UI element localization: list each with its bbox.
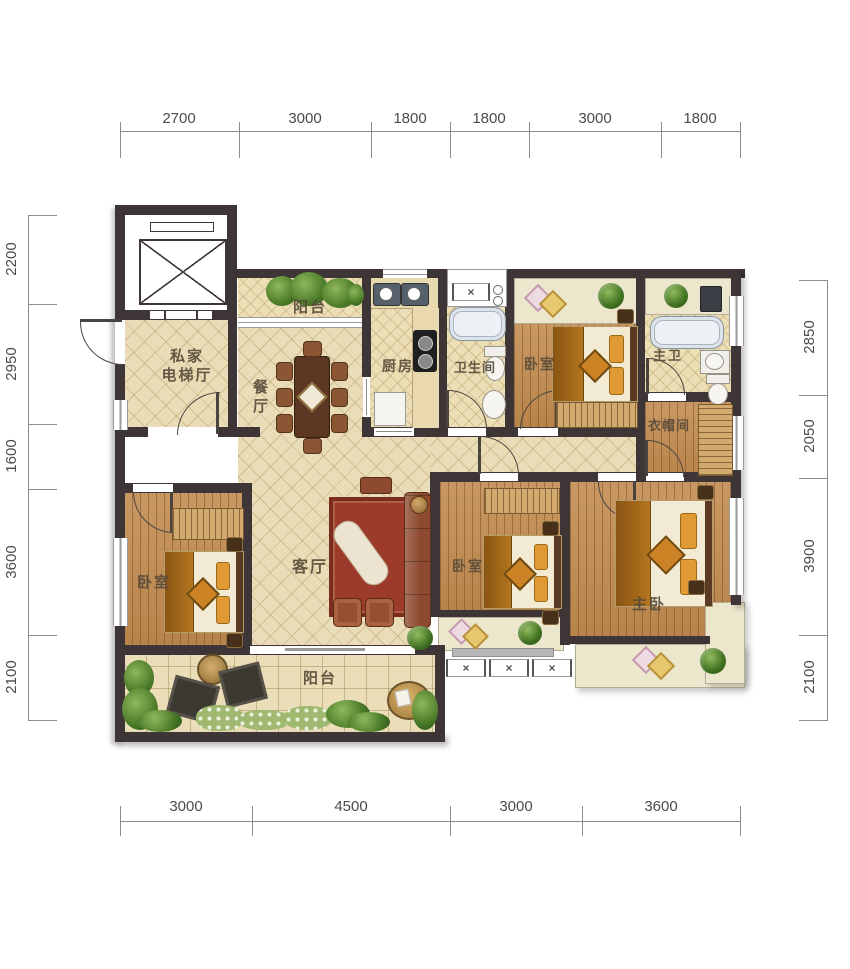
bedroom-top-nightstand bbox=[617, 309, 634, 324]
dim-tick bbox=[740, 122, 741, 158]
hall-window bbox=[113, 400, 128, 430]
room-label-balcony-bottom: 阳台 bbox=[294, 670, 346, 689]
flower-bed bbox=[196, 705, 244, 731]
bed-pillow bbox=[216, 596, 230, 624]
bed-headboard bbox=[705, 501, 712, 606]
dim-label-bottom: 4500 bbox=[316, 798, 386, 816]
bathtub-inner bbox=[453, 311, 502, 337]
bay-plant bbox=[598, 283, 624, 309]
dim-tick bbox=[120, 122, 121, 158]
dim-label-bottom: 3600 bbox=[626, 798, 696, 816]
elevator-counterweight bbox=[150, 222, 214, 232]
bed-headboard bbox=[554, 536, 561, 608]
dim-tick bbox=[28, 424, 57, 425]
room-label-master-bath: 主卫 bbox=[648, 348, 688, 364]
room-label-kitchen: 厨房 bbox=[370, 358, 426, 376]
dim-label-right: 3900 bbox=[801, 528, 819, 584]
dim-tick bbox=[450, 806, 451, 836]
dim-label-top: 2700 bbox=[144, 110, 214, 128]
room-label-master-bedroom: 主卧 bbox=[626, 596, 672, 615]
bedroom-left-nightstand bbox=[226, 633, 243, 648]
room-label-dining: 餐厅 bbox=[248, 372, 268, 424]
dim-tick bbox=[799, 720, 828, 721]
dim-tick bbox=[371, 122, 372, 158]
bay-plant bbox=[700, 648, 726, 674]
dim-label-left: 2200 bbox=[3, 231, 21, 287]
dim-label-top: 1800 bbox=[375, 110, 445, 128]
dim-tick bbox=[582, 806, 583, 836]
dim-label-bottom: 3000 bbox=[481, 798, 551, 816]
room-label-line: 电梯厅 bbox=[146, 367, 228, 386]
bedroom-left-nightstand bbox=[226, 537, 243, 552]
ac-unit-icon: × bbox=[489, 659, 529, 677]
elevator-wall-top bbox=[115, 205, 237, 215]
bedroom-mid-door-leaf bbox=[478, 436, 481, 474]
dining-chair bbox=[303, 341, 322, 357]
room-label-bedroom-mid: 卧室 bbox=[444, 558, 492, 576]
master-nightstand bbox=[697, 485, 714, 500]
bed-pillow bbox=[534, 576, 548, 602]
bedroom-left-window bbox=[113, 538, 128, 626]
master-bath-window bbox=[729, 296, 744, 346]
dining-chair bbox=[331, 388, 348, 407]
dim-tick bbox=[28, 489, 57, 490]
dim-tick bbox=[799, 478, 828, 479]
room-label-living: 客厅 bbox=[284, 558, 336, 578]
kitchen-sink-right-basin bbox=[407, 287, 421, 301]
bed-pillow bbox=[534, 544, 548, 570]
dining-chair bbox=[331, 362, 348, 381]
dim-tick bbox=[661, 122, 662, 158]
balcony-wall-bottom bbox=[115, 732, 445, 742]
dim-tick bbox=[252, 806, 253, 836]
bedroom-mid-bed bbox=[483, 535, 562, 609]
elevator-wall-left bbox=[115, 205, 125, 320]
elevator-door-tick-2 bbox=[196, 311, 198, 319]
dim-label-left: 2100 bbox=[3, 649, 21, 705]
bay-plant bbox=[664, 284, 688, 308]
dim-tick bbox=[799, 280, 828, 281]
bedroom-mid-nightstand bbox=[542, 610, 559, 625]
water-heater bbox=[700, 286, 722, 312]
wall-hall-bottom-right bbox=[218, 427, 260, 437]
kitchen-slider-left-line bbox=[366, 379, 367, 415]
dim-label-top: 1800 bbox=[665, 110, 735, 128]
bedroom-left-door-opening bbox=[133, 484, 173, 492]
cloakroom-wardrobe bbox=[698, 404, 733, 476]
dining-chair bbox=[331, 414, 348, 433]
elevator-shaft-x-icon bbox=[139, 239, 227, 305]
elevator-door-tick-1 bbox=[164, 311, 166, 319]
room-label-elevator-hall: 私家 电梯厅 bbox=[146, 348, 228, 386]
dim-tick bbox=[28, 215, 57, 216]
shrub bbox=[348, 712, 390, 732]
ac-unit-icon: × bbox=[446, 659, 486, 677]
dim-tick bbox=[799, 635, 828, 636]
bath-door-leaf bbox=[446, 390, 449, 428]
master-nightstand bbox=[688, 580, 705, 595]
bath-door-opening bbox=[448, 428, 486, 436]
dim-label-right: 2850 bbox=[801, 309, 819, 365]
dim-label-left: 3600 bbox=[3, 534, 21, 590]
shrub bbox=[138, 710, 182, 732]
armchair bbox=[365, 598, 394, 627]
bed-headboard bbox=[630, 327, 637, 401]
dim-label-right: 2050 bbox=[801, 408, 819, 464]
wall-living-bedroom-mid bbox=[430, 472, 440, 617]
balcony-top-window bbox=[238, 317, 362, 328]
balcony-wall-right bbox=[435, 650, 445, 742]
room-label-bedroom-left: 卧室 bbox=[130, 574, 178, 593]
hall-door-leaf bbox=[216, 392, 219, 434]
entry-door-leaf bbox=[80, 319, 122, 322]
bed-headboard bbox=[236, 552, 243, 632]
dining-chair bbox=[276, 388, 293, 407]
room-label-cloakroom: 衣帽间 bbox=[638, 418, 700, 434]
shrub bbox=[412, 690, 438, 730]
dim-tick bbox=[28, 304, 57, 305]
dim-label-left: 2950 bbox=[3, 336, 21, 392]
bedroom-top-wardrobe bbox=[556, 402, 638, 428]
bed-pillow bbox=[680, 513, 697, 549]
flower-bed bbox=[238, 710, 290, 730]
stove-burner-1 bbox=[418, 336, 433, 351]
side-bench bbox=[360, 477, 392, 494]
floorplan-canvas: × bbox=[0, 0, 850, 969]
dim-label-left: 1600 bbox=[3, 428, 21, 484]
washer-nook-faucet-2 bbox=[493, 296, 503, 306]
entry-door-arc bbox=[80, 322, 123, 365]
dim-label-top: 1800 bbox=[454, 110, 524, 128]
wall-hall-dining bbox=[228, 277, 237, 437]
kitchen-sink-left-basin bbox=[379, 287, 393, 301]
dim-label-right: 2100 bbox=[801, 649, 819, 705]
master-door-opening bbox=[598, 473, 636, 481]
master-bathtub-inner bbox=[654, 320, 720, 345]
room-label-line: 私家 bbox=[146, 348, 228, 367]
dining-chair bbox=[276, 414, 293, 433]
bedroom-top-bed bbox=[552, 326, 638, 402]
bedroom-mid-nightstand bbox=[542, 521, 559, 536]
ac-unit-icon: × bbox=[532, 659, 572, 677]
washer-nook-faucet-1 bbox=[493, 285, 503, 295]
dim-label-bottom: 3000 bbox=[151, 798, 221, 816]
elevator-door-gap bbox=[150, 311, 212, 319]
dim-label-top: 3000 bbox=[270, 110, 340, 128]
dim-line-right bbox=[827, 280, 828, 720]
kitchen-slider-bottom-line bbox=[376, 431, 412, 432]
flower-bed bbox=[284, 706, 332, 730]
kitchen-fridge bbox=[374, 392, 406, 426]
dim-tick bbox=[740, 806, 741, 836]
bed-pillow bbox=[216, 562, 230, 590]
wall-master-bottom bbox=[570, 636, 710, 644]
cloakroom-door-leaf bbox=[645, 440, 648, 476]
dim-tick bbox=[28, 720, 57, 721]
room-label-bedroom-top: 卧室 bbox=[516, 356, 564, 374]
dim-tick bbox=[120, 806, 121, 836]
dining-chair bbox=[303, 438, 322, 454]
dim-tick bbox=[529, 122, 530, 158]
bay-plant bbox=[518, 621, 542, 645]
room-label-bathroom: 卫生间 bbox=[444, 360, 506, 376]
dim-tick bbox=[450, 122, 451, 158]
bed-pillow bbox=[609, 335, 624, 363]
dim-tick bbox=[28, 635, 57, 636]
bath-sink bbox=[482, 390, 506, 419]
dim-tick bbox=[799, 395, 828, 396]
balcony-table-papers bbox=[394, 689, 411, 708]
bedroom-mid-outer-sill bbox=[452, 648, 554, 657]
master-bathtub bbox=[650, 316, 724, 349]
kitchen-slider-bottom bbox=[374, 428, 414, 436]
armchair bbox=[333, 598, 362, 627]
balcony-slider-leaf bbox=[285, 648, 365, 651]
bedroom-left-wardrobe bbox=[172, 508, 244, 540]
living-plant bbox=[407, 626, 433, 650]
bed-pillow bbox=[609, 367, 624, 395]
bedroom-mid-wardrobe bbox=[484, 488, 560, 514]
master-bedroom-window bbox=[729, 498, 744, 595]
bedroom-top-door-opening bbox=[518, 428, 558, 436]
master-bath-sink bbox=[705, 353, 724, 370]
room-label-balcony-top: 阳台 bbox=[280, 299, 340, 318]
dim-label-top: 3000 bbox=[560, 110, 630, 128]
dim-tick bbox=[239, 122, 240, 158]
bathtub bbox=[449, 307, 506, 341]
washing-machine-icon: × bbox=[452, 283, 490, 301]
dim-line-bottom bbox=[120, 821, 740, 822]
corridor-floor bbox=[430, 436, 636, 474]
planter-shrub bbox=[348, 284, 364, 306]
dim-line-left bbox=[28, 215, 29, 720]
dim-line-top bbox=[120, 131, 740, 132]
dining-chair bbox=[276, 362, 293, 381]
side-table bbox=[410, 496, 428, 514]
master-toilet-bowl bbox=[708, 383, 728, 405]
